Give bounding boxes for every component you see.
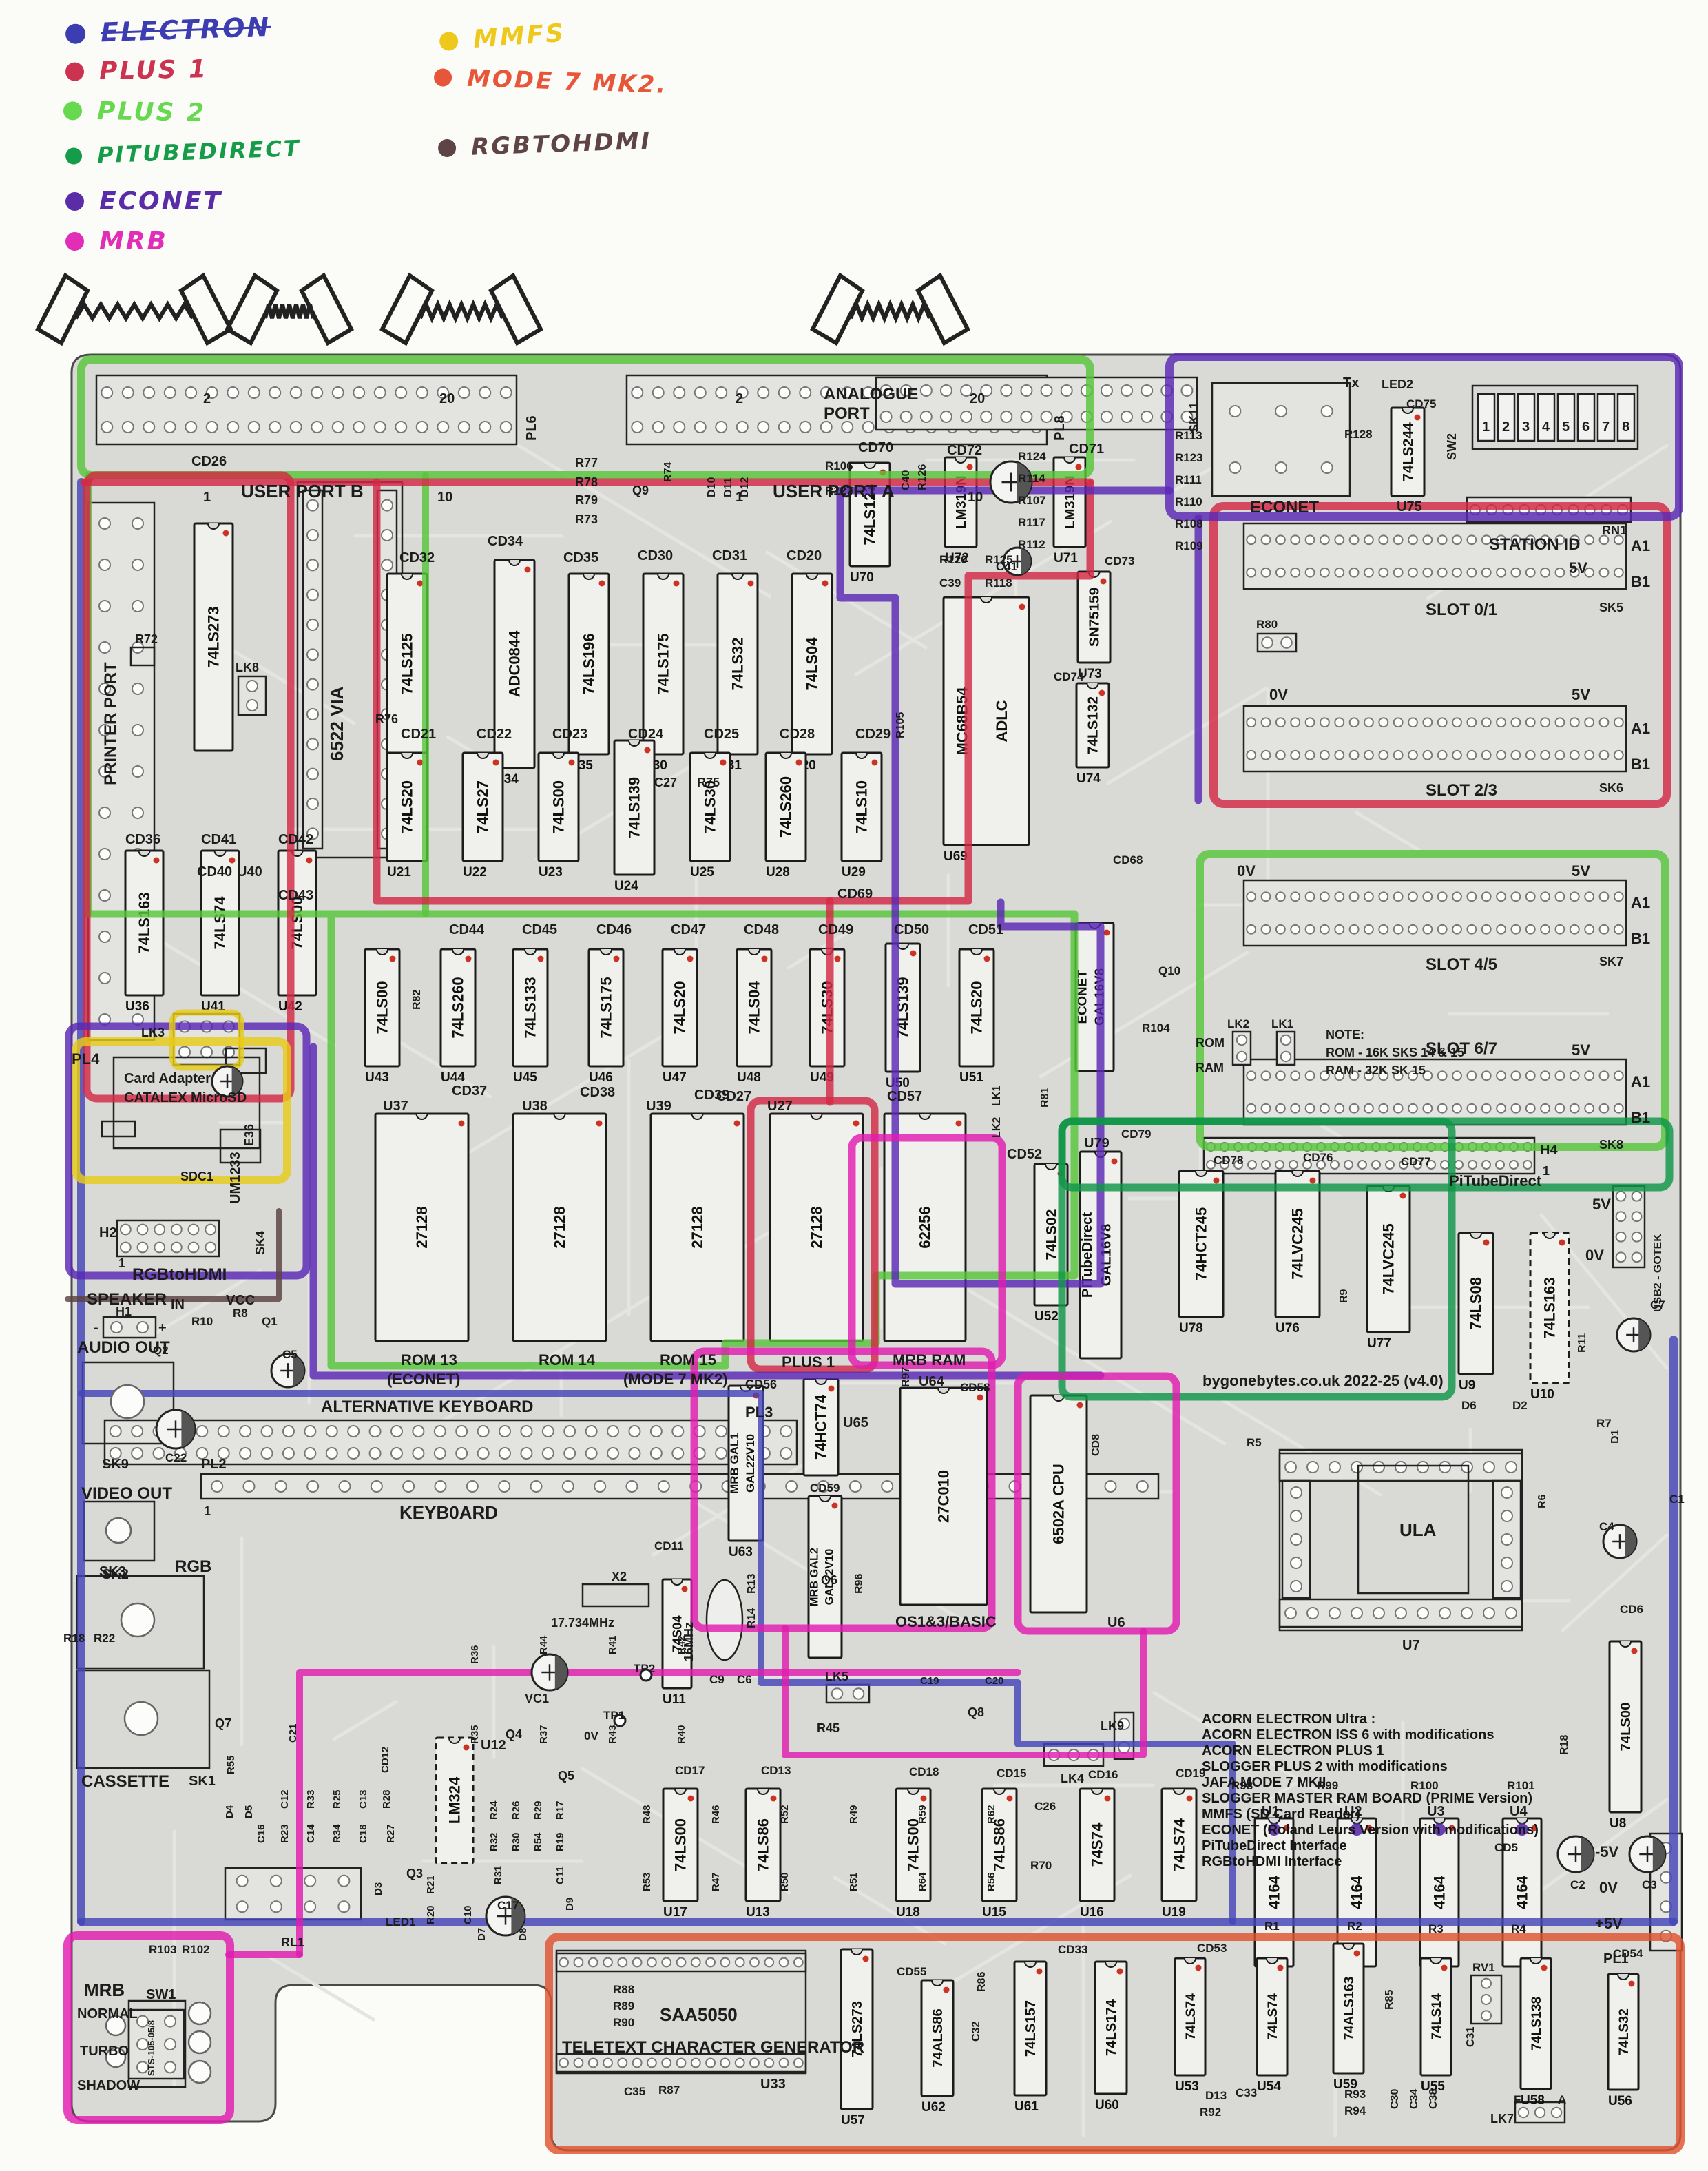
label-r92: R92 xyxy=(1200,2106,1221,2119)
label-q4: Q4 xyxy=(506,1727,522,1741)
mount-hole xyxy=(121,1603,154,1637)
label-h2: H2 xyxy=(99,1225,117,1240)
label-r17: R17 xyxy=(554,1800,566,1820)
label-cd47: CD47 xyxy=(671,922,706,937)
label-sk9: SK9 xyxy=(102,1457,129,1472)
label-r52: R52 xyxy=(779,1805,791,1824)
chip-4164: 4164 xyxy=(1420,1818,1459,1966)
svg-text:74S74: 74S74 xyxy=(1089,1822,1106,1867)
label-r4: R4 xyxy=(1511,1922,1526,1935)
label-lk4: LK4 xyxy=(1061,1772,1084,1785)
label-cd37: CD37 xyxy=(452,1083,487,1099)
chip-27128: 27128 xyxy=(375,1114,468,1341)
label-r59: R59 xyxy=(917,1805,928,1824)
label-cd24: CD24 xyxy=(628,727,664,742)
svg-text:74LS175: 74LS175 xyxy=(598,977,615,1038)
label--econet-: (ECONET) xyxy=(387,1371,460,1388)
label-r26: R26 xyxy=(510,1800,522,1820)
svg-text:U29: U29 xyxy=(842,865,866,880)
label-alternative-keyboard: ALTERNATIVE KEYBOARD xyxy=(321,1398,533,1416)
label-tp1: TP1 xyxy=(603,1709,625,1722)
label--5v: +5V xyxy=(1595,1915,1623,1932)
chip-u22: 74LS27U22 xyxy=(463,753,503,880)
label-c22: C22 xyxy=(165,1451,187,1464)
label-d7: D7 xyxy=(476,1928,488,1941)
label-5v: 5V xyxy=(1592,1196,1611,1213)
label-cd29: CD29 xyxy=(855,727,891,742)
label-plus-1: PLUS 1 xyxy=(782,1353,835,1371)
socket-ula-left xyxy=(1282,1481,1310,1598)
label-r30: R30 xyxy=(510,1832,522,1851)
chip-u78: 74HCT245U78 xyxy=(1179,1171,1223,1336)
label-r118: R118 xyxy=(985,576,1012,590)
svg-text:U9: U9 xyxy=(1459,1378,1475,1393)
label-r9: R9 xyxy=(1338,1289,1350,1303)
svg-text:U45: U45 xyxy=(513,1070,537,1085)
label-cd33: CD33 xyxy=(1058,1943,1087,1956)
label-rom: ROM xyxy=(1196,1036,1225,1050)
svg-text:27128: 27128 xyxy=(551,1206,568,1248)
label-cd13: CD13 xyxy=(761,1764,791,1777)
svg-text:U46: U46 xyxy=(589,1070,613,1085)
label-r87: R87 xyxy=(658,2084,680,2097)
chip-u17: 74LS00U17 xyxy=(663,1789,698,1920)
label-q9: Q9 xyxy=(632,484,649,497)
svg-text:U13: U13 xyxy=(746,1905,770,1920)
label-d10: D10 xyxy=(706,477,718,497)
label-c41: C41 xyxy=(996,560,1017,573)
label-c9: C9 xyxy=(709,1673,725,1686)
label-cd53: CD53 xyxy=(1197,1942,1227,1955)
svg-text:74LS163: 74LS163 xyxy=(1541,1277,1559,1338)
socket-user-port-b xyxy=(96,375,517,444)
label-6: 6 xyxy=(1582,419,1590,435)
label-r79: R79 xyxy=(575,493,598,507)
label-c27: C27 xyxy=(654,776,677,789)
label-u12: U12 xyxy=(481,1738,506,1753)
label-r85: R85 xyxy=(1384,1990,1395,2010)
label-d9: D9 xyxy=(564,1898,576,1911)
label-r50: R50 xyxy=(779,1872,791,1891)
svg-text:U48: U48 xyxy=(737,1070,761,1085)
label-sk6: SK6 xyxy=(1599,781,1623,795)
socket-h2-rgbtohdmi xyxy=(117,1220,219,1256)
svg-text:MRB GAL1: MRB GAL1 xyxy=(728,1433,741,1494)
label-d8: D8 xyxy=(517,1928,529,1941)
label-ram: RAM xyxy=(1196,1061,1224,1074)
label-u79: U79 xyxy=(1084,1136,1110,1151)
label-lk1: LK1 xyxy=(1271,1017,1293,1030)
chip-u58: 74LS138U58 xyxy=(1521,1958,1551,2108)
svg-text:U51: U51 xyxy=(959,1070,983,1085)
chip-u21: 74LS20U21 xyxy=(387,753,427,880)
svg-text:74LS273: 74LS273 xyxy=(205,606,222,667)
label-cd54: CD54 xyxy=(1613,1947,1643,1960)
label-c35: C35 xyxy=(624,2085,645,2098)
svg-text:RGBtoHDMI Interface: RGBtoHDMI Interface xyxy=(1202,1854,1342,1869)
svg-text:74LS244: 74LS244 xyxy=(1400,422,1416,481)
label-cd31: CD31 xyxy=(712,548,747,563)
label-pl6: PL6 xyxy=(524,415,539,441)
label-printer-port: PRINTER PORT xyxy=(101,662,120,785)
socket-gotek-header xyxy=(1613,1186,1645,1267)
svg-text:74LS260: 74LS260 xyxy=(450,977,467,1038)
label-u40: U40 xyxy=(237,864,262,880)
chip-u59: 74ALS163U59 xyxy=(1333,1944,1364,2092)
label-vcc: VCC xyxy=(226,1293,255,1308)
label-u4: U4 xyxy=(1510,1804,1528,1819)
label-1: 1 xyxy=(1543,1164,1550,1178)
label-c30: C30 xyxy=(1389,2089,1401,2109)
label-cd28: CD28 xyxy=(780,727,815,742)
label-r27: R27 xyxy=(385,1824,397,1843)
svg-text:74LS175: 74LS175 xyxy=(655,633,672,694)
svg-text:U8: U8 xyxy=(1610,1816,1626,1831)
svg-text:74ALS86: 74ALS86 xyxy=(930,2008,946,2067)
label-shadow: SHADOW xyxy=(77,2078,140,2093)
label-r36: R36 xyxy=(469,1645,481,1664)
svg-text:74LS74: 74LS74 xyxy=(1171,1818,1188,1871)
socket-ula-top xyxy=(1280,1453,1522,1481)
svg-text:74LS00: 74LS00 xyxy=(905,1818,922,1871)
label-r73: R73 xyxy=(575,512,598,526)
label-c4: C4 xyxy=(1599,1520,1614,1533)
label-a1: A1 xyxy=(1631,537,1650,554)
chip-74hct74: 74HCT74 xyxy=(804,1379,838,1475)
chip-u36: 74LS163U36 xyxy=(125,851,163,1014)
chip-6502a-cpu: 6502A CPU xyxy=(1030,1395,1087,1612)
label-cd12: CD12 xyxy=(379,1747,391,1773)
svg-text:74LS04: 74LS04 xyxy=(804,637,821,691)
chip-74ls244: 74LS244 xyxy=(1391,408,1424,496)
label-lk2: LK2 xyxy=(1227,1017,1249,1030)
label-q5: Q5 xyxy=(558,1769,574,1783)
svg-text:74LS00: 74LS00 xyxy=(550,780,567,833)
label-r42: R42 xyxy=(676,1635,687,1654)
label-note-: NOTE: xyxy=(1326,1028,1364,1041)
label-10: 10 xyxy=(437,490,452,505)
label-cd78: CD78 xyxy=(1214,1154,1243,1167)
label-cd72: CD72 xyxy=(947,443,982,458)
svg-text:74LS157: 74LS157 xyxy=(1023,2000,1039,2057)
label-r45: R45 xyxy=(817,1721,840,1735)
label-1: 1 xyxy=(118,1256,125,1270)
label-d5: D5 xyxy=(243,1805,255,1818)
capacitor xyxy=(156,1410,195,1448)
svg-text:ADC0844: ADC0844 xyxy=(506,630,523,697)
label-cd77: CD77 xyxy=(1401,1155,1430,1168)
mount-hole xyxy=(189,2061,211,2083)
crystal-16mhz xyxy=(707,1580,742,1660)
label-sk1: SK1 xyxy=(189,1774,216,1789)
svg-text:U22: U22 xyxy=(463,865,487,880)
label-station-id: STATION ID xyxy=(1489,535,1580,554)
clip-icon xyxy=(38,276,231,343)
label-r1: R1 xyxy=(1264,1920,1280,1933)
label-c11: C11 xyxy=(554,1866,566,1884)
label-u7: U7 xyxy=(1402,1638,1420,1653)
svg-text:4164: 4164 xyxy=(1348,1875,1366,1909)
label-5v: 5V xyxy=(1572,1041,1590,1059)
label-1: 1 xyxy=(203,490,211,505)
label-c14: C14 xyxy=(305,1824,317,1843)
svg-text:74LS00: 74LS00 xyxy=(374,981,391,1034)
label-c31: C31 xyxy=(1465,2027,1477,2047)
label-cd55: CD55 xyxy=(897,1965,926,1978)
label-c39: C39 xyxy=(939,576,961,590)
chip-u56: 74LS32U56 xyxy=(1608,1974,1638,2108)
label-c34: C34 xyxy=(1408,2089,1420,2109)
svg-text:ACORN ELECTRON Ultra :: ACORN ELECTRON Ultra : xyxy=(1202,1712,1375,1727)
label-r120: R120 xyxy=(939,553,968,566)
label-rgbtohdmi: RGBtoHDMI xyxy=(132,1265,227,1284)
socket-via-socket-left xyxy=(303,490,322,849)
label-r44: R44 xyxy=(538,1635,550,1654)
label-d13: D13 xyxy=(1205,2089,1227,2102)
label-u33: U33 xyxy=(760,2077,786,2092)
svg-text:27C010: 27C010 xyxy=(935,1470,952,1523)
label-r96: R96 xyxy=(853,1574,865,1594)
svg-text:U57: U57 xyxy=(841,2113,865,2128)
label-u64: U64 xyxy=(919,1374,945,1389)
label-lk7: LK7 xyxy=(1490,2112,1514,2126)
chip-u51: 74LS20U51 xyxy=(959,949,994,1085)
label-r106: R106 xyxy=(825,459,853,472)
mount-hole xyxy=(189,2002,211,2024)
svg-text:U18: U18 xyxy=(896,1905,920,1920)
label-5v: 5V xyxy=(1569,559,1587,576)
label-analogue: ANALOGUE xyxy=(824,385,918,404)
label-sw2: SW2 xyxy=(1445,433,1459,460)
label-cd22: CD22 xyxy=(477,727,512,742)
label-r109: R109 xyxy=(1175,539,1203,552)
label-cd23: CD23 xyxy=(552,727,587,742)
label-c32: C32 xyxy=(970,2022,982,2042)
svg-text:U21: U21 xyxy=(387,865,411,880)
chip-u44: 74LS260U44 xyxy=(441,949,475,1085)
label-r35: R35 xyxy=(469,1725,481,1744)
chip-u76: 74LVC245U76 xyxy=(1275,1171,1320,1336)
label-pl2: PL2 xyxy=(201,1457,227,1472)
label-teletext-character-generator: TELETEXT CHARACTER GENERATOR xyxy=(562,2038,864,2057)
label-saa5050: SAA5050 xyxy=(660,2004,738,2025)
label-r29: R29 xyxy=(532,1800,544,1820)
label-cd50: CD50 xyxy=(894,922,929,937)
label-r33: R33 xyxy=(305,1789,317,1809)
label-c5: C5 xyxy=(282,1348,298,1361)
label-sk4: SK4 xyxy=(253,1231,267,1255)
label-20: 20 xyxy=(439,391,455,406)
label-r10: R10 xyxy=(191,1315,213,1328)
label-r49: R49 xyxy=(848,1805,860,1824)
label-card-adapter: Card Adapter xyxy=(124,1071,211,1086)
svg-text:U36: U36 xyxy=(125,999,149,1014)
label-cd11: CD11 xyxy=(654,1539,684,1552)
label-c7: C7 xyxy=(1650,1298,1665,1311)
svg-text:74LS74: 74LS74 xyxy=(1183,1993,1198,2040)
label-r46: R46 xyxy=(710,1805,722,1824)
label-cd71: CD71 xyxy=(1069,442,1104,457)
label-d4: D4 xyxy=(224,1805,236,1818)
label-r89: R89 xyxy=(613,1999,634,2013)
chip-u16: 74S74U16 xyxy=(1080,1789,1114,1920)
svg-text:U24: U24 xyxy=(614,879,638,893)
label-catalex-microsd: CATALEX MicroSD xyxy=(124,1090,247,1105)
label-r126: R126 xyxy=(917,464,928,490)
svg-text:U10: U10 xyxy=(1530,1387,1554,1402)
label-u39: U39 xyxy=(646,1099,671,1114)
label-u3: U3 xyxy=(1427,1804,1445,1819)
label-cd75: CD75 xyxy=(1406,397,1436,411)
chip-u24: 74LS139U24 xyxy=(614,740,654,893)
label-d6: D6 xyxy=(1461,1399,1477,1412)
svg-text:74LS133: 74LS133 xyxy=(522,977,539,1038)
label-cd15: CD15 xyxy=(997,1767,1026,1780)
label-c17: C17 xyxy=(497,1899,519,1912)
label-tx: Tx xyxy=(1343,375,1359,391)
label-c18: C18 xyxy=(357,1824,369,1843)
label-sk2: SK2 xyxy=(102,1567,129,1582)
svg-text:SLOGGER PLUS 2 with modificati: SLOGGER PLUS 2 with modifications xyxy=(1202,1759,1448,1774)
label-r105: R105 xyxy=(895,712,906,738)
label-0v: 0V xyxy=(1599,1879,1618,1896)
label-lk9: LK9 xyxy=(1101,1719,1124,1733)
label--: + xyxy=(158,1320,167,1336)
chip-u20: 74LS04U20 xyxy=(792,574,832,773)
label-r127: R127 xyxy=(825,484,853,497)
svg-text:74LS20: 74LS20 xyxy=(968,981,986,1034)
chip-u23: 74LS00U23 xyxy=(539,753,579,880)
svg-text:ACORN ELECTRON ISS 6 with modi: ACORN ELECTRON ISS 6 with modifications xyxy=(1202,1727,1494,1743)
label-cd42: CD42 xyxy=(278,832,313,847)
label-4: 4 xyxy=(1542,419,1550,435)
label-user-port-b: USER PORT B xyxy=(241,481,364,501)
label-q7: Q7 xyxy=(215,1716,231,1730)
svg-text:MMFS (SD Card Reader): MMFS (SD Card Reader) xyxy=(1202,1807,1360,1822)
label-f: F xyxy=(1514,2093,1521,2106)
chip-u47: 74LS20U47 xyxy=(663,949,697,1085)
pcb-annotated-scan: Acorn Electron Ultra annotated PCB layou… xyxy=(0,0,1708,2171)
svg-text:74LS132: 74LS132 xyxy=(1085,696,1101,754)
label-rv1: RV1 xyxy=(1472,1961,1495,1974)
label-cd48: CD48 xyxy=(744,922,779,937)
label-econet: ECONET xyxy=(1250,498,1319,517)
svg-text:74LS74: 74LS74 xyxy=(1265,1993,1280,2040)
label-r31: R31 xyxy=(492,1865,504,1884)
label-d1: D1 xyxy=(1610,1429,1621,1444)
label-r82: R82 xyxy=(411,990,423,1010)
label-cd25: CD25 xyxy=(704,727,739,742)
chip-u53: 74LS74U53 xyxy=(1175,1958,1205,2094)
label-cd51: CD51 xyxy=(968,922,1003,937)
chip-27128: 27128 xyxy=(651,1114,744,1341)
label-port: PORT xyxy=(824,404,870,423)
label-r62: R62 xyxy=(986,1805,997,1824)
label-c3: C3 xyxy=(1642,1878,1657,1891)
svg-text:74LS00: 74LS00 xyxy=(1618,1703,1634,1752)
svg-text:U76: U76 xyxy=(1275,1321,1300,1336)
label-r117: R117 xyxy=(1018,516,1045,529)
label-pl4: PL4 xyxy=(72,1050,100,1068)
label-r77: R77 xyxy=(575,456,598,470)
clip-icon xyxy=(382,276,541,343)
svg-text:74LS14: 74LS14 xyxy=(1429,1993,1444,2040)
label-led1: LED1 xyxy=(386,1915,415,1929)
svg-text:74LS20: 74LS20 xyxy=(399,780,416,833)
label-r72: R72 xyxy=(135,632,158,646)
label-u27: U27 xyxy=(767,1099,793,1114)
label-slot-0-1: SLOT 0/1 xyxy=(1426,601,1497,619)
label-rom-15: ROM 15 xyxy=(660,1351,716,1369)
label-lk5: LK5 xyxy=(825,1670,848,1683)
label-cd35: CD35 xyxy=(563,550,598,565)
label-cd41: CD41 xyxy=(201,832,236,847)
label-r19: R19 xyxy=(554,1832,566,1851)
svg-text:27128: 27128 xyxy=(808,1206,825,1248)
svg-text:U25: U25 xyxy=(690,865,714,880)
label-r18: R18 xyxy=(1559,1735,1570,1755)
label-c21: C21 xyxy=(287,1723,299,1743)
label-turbo: TURBO xyxy=(80,2044,129,2059)
socket-slot-6-7 xyxy=(1244,1059,1626,1125)
label-0v: 0V xyxy=(584,1729,598,1743)
svg-text:U19: U19 xyxy=(1162,1905,1186,1920)
socket-lk2 xyxy=(1233,1032,1251,1065)
label-r94: R94 xyxy=(1344,2104,1366,2117)
label-r107: R107 xyxy=(1018,494,1046,507)
label-c1: C1 xyxy=(1669,1493,1685,1506)
svg-text:U28: U28 xyxy=(766,865,790,880)
label-sk11: SK11 xyxy=(1187,402,1201,433)
label-bygonebytes-co-uk-2022-25-v4-0-: bygonebytes.co.uk 2022-25 (v4.0) xyxy=(1202,1372,1444,1389)
socket-ula-bottom xyxy=(1280,1599,1522,1627)
svg-text:GAL22V10: GAL22V10 xyxy=(744,1434,757,1493)
label-keyb0ard: KEYB0ARD xyxy=(399,1502,498,1523)
label-cd18: CD18 xyxy=(909,1765,939,1778)
socket-lk5 xyxy=(826,1685,869,1703)
label-r6: R6 xyxy=(1537,1494,1548,1508)
label-r88: R88 xyxy=(613,1983,634,1996)
label-r102: R102 xyxy=(182,1943,210,1956)
socket-econet-socket xyxy=(1212,383,1350,496)
label-r23: R23 xyxy=(279,1824,291,1843)
svg-text:74LVC245: 74LVC245 xyxy=(1289,1208,1306,1280)
clip-icon xyxy=(813,276,968,343)
socket-slot-2-3 xyxy=(1244,706,1626,771)
label-r55: R55 xyxy=(225,1755,237,1774)
socket-saa5050-top xyxy=(556,1953,806,1971)
label-r93: R93 xyxy=(1344,2088,1366,2101)
chip-u46: 74LS175U46 xyxy=(589,949,623,1085)
socket-speaker-h1 xyxy=(103,1317,156,1338)
label-cd19: CD19 xyxy=(1176,1767,1205,1780)
label-r2: R2 xyxy=(1347,1920,1362,1933)
label-r64: R64 xyxy=(917,1872,928,1891)
label-cd34: CD34 xyxy=(488,534,523,549)
label-r20: R20 xyxy=(425,1905,437,1924)
label-r34: R34 xyxy=(331,1824,343,1843)
label-q2: Q2 xyxy=(153,1344,169,1357)
svg-text:4164: 4164 xyxy=(1514,1875,1531,1909)
svg-text:U74: U74 xyxy=(1076,771,1101,786)
chip-u50: 74LS139U50 xyxy=(886,944,920,1090)
label-r90: R90 xyxy=(613,2016,634,2029)
socket-relay-rl1 xyxy=(225,1868,361,1920)
label-r74: R74 xyxy=(663,462,674,482)
label-c2: C2 xyxy=(1570,1878,1585,1891)
chip-u77: 74LVC245U77 xyxy=(1367,1186,1410,1351)
label-sk7: SK7 xyxy=(1599,955,1623,968)
